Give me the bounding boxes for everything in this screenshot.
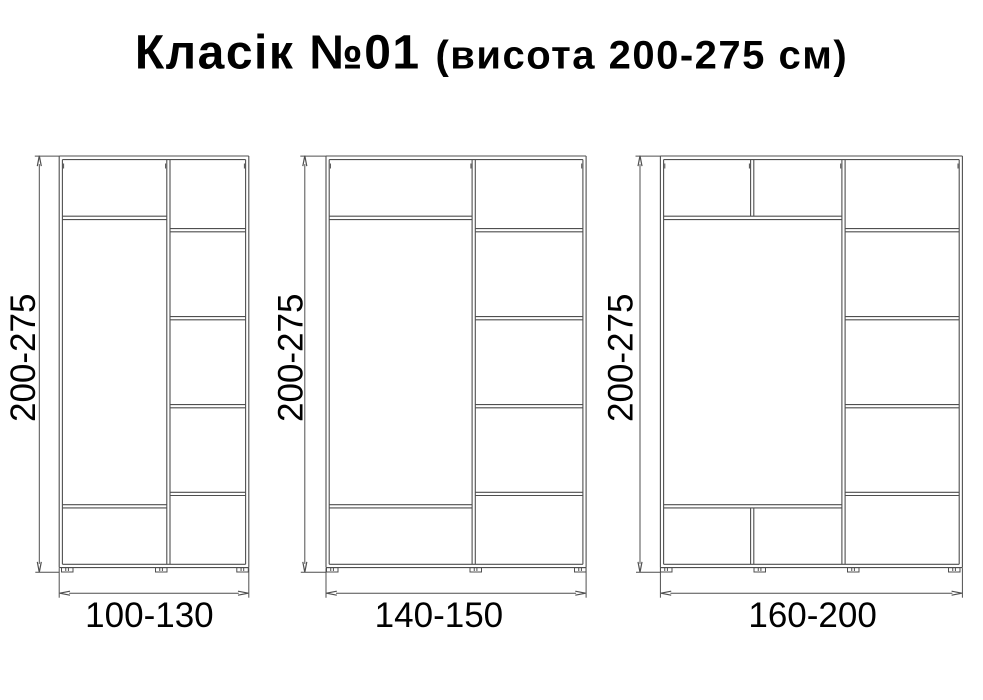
- svg-text:140-150: 140-150: [375, 596, 503, 635]
- svg-text:160-200: 160-200: [748, 596, 876, 635]
- svg-text:200-275: 200-275: [601, 294, 640, 422]
- svg-text:200-275: 200-275: [272, 294, 311, 422]
- svg-text:200-275: 200-275: [4, 294, 43, 422]
- svg-text:100-130: 100-130: [85, 596, 213, 635]
- svg-text:Класік №01 (висота 200-275 см): Класік №01 (висота 200-275 см): [135, 27, 848, 80]
